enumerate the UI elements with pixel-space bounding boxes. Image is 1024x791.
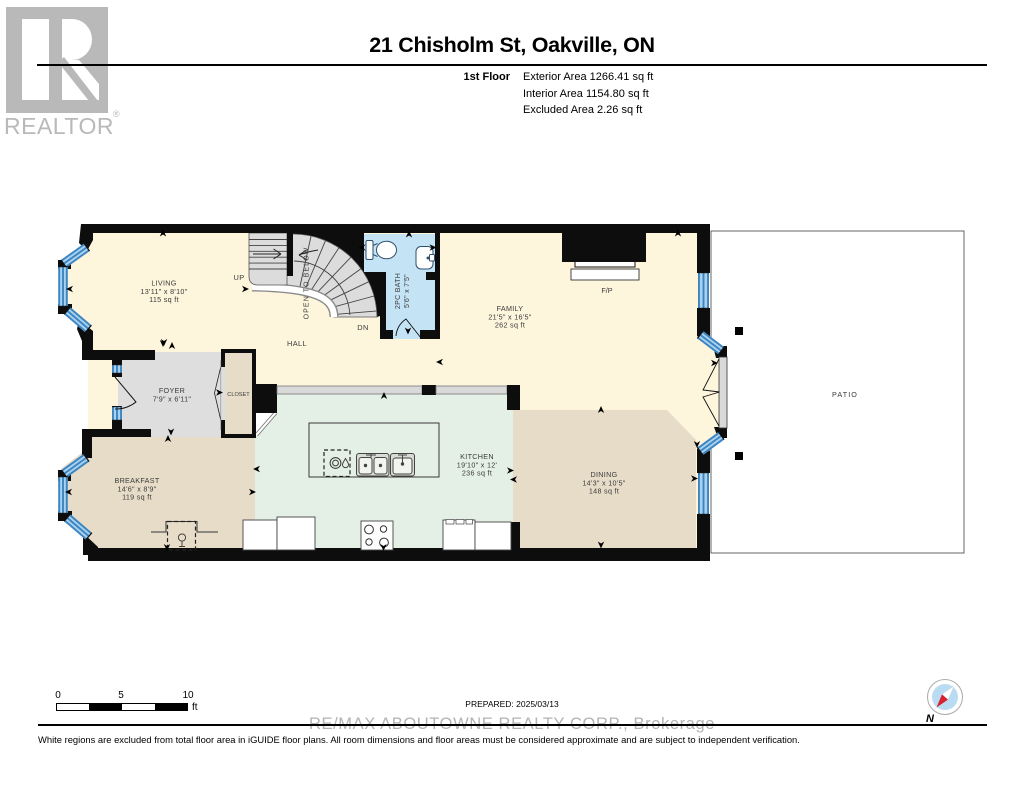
svg-text:DN: DN: [357, 323, 368, 332]
svg-text:5'6" x 7'5": 5'6" x 7'5": [404, 274, 411, 308]
svg-text:UP: UP: [233, 273, 244, 282]
svg-text:119 sq ft: 119 sq ft: [122, 493, 152, 502]
svg-text:262 sq ft: 262 sq ft: [495, 321, 525, 330]
svg-text:OPEN TO BELOW: OPEN TO BELOW: [304, 247, 311, 320]
svg-text:115 sq ft: 115 sq ft: [149, 295, 179, 304]
svg-text:2PC BATH: 2PC BATH: [395, 273, 402, 309]
svg-text:F/P: F/P: [601, 286, 612, 295]
svg-text:236 sq ft: 236 sq ft: [462, 469, 492, 478]
svg-text:7'9" x 6'11": 7'9" x 6'11": [153, 394, 192, 403]
svg-text:HALL: HALL: [287, 339, 307, 348]
svg-text:N: N: [926, 713, 935, 725]
svg-text:CLOSET: CLOSET: [227, 392, 250, 398]
svg-text:PATIO: PATIO: [832, 390, 858, 399]
svg-text:148 sq ft: 148 sq ft: [589, 487, 619, 496]
